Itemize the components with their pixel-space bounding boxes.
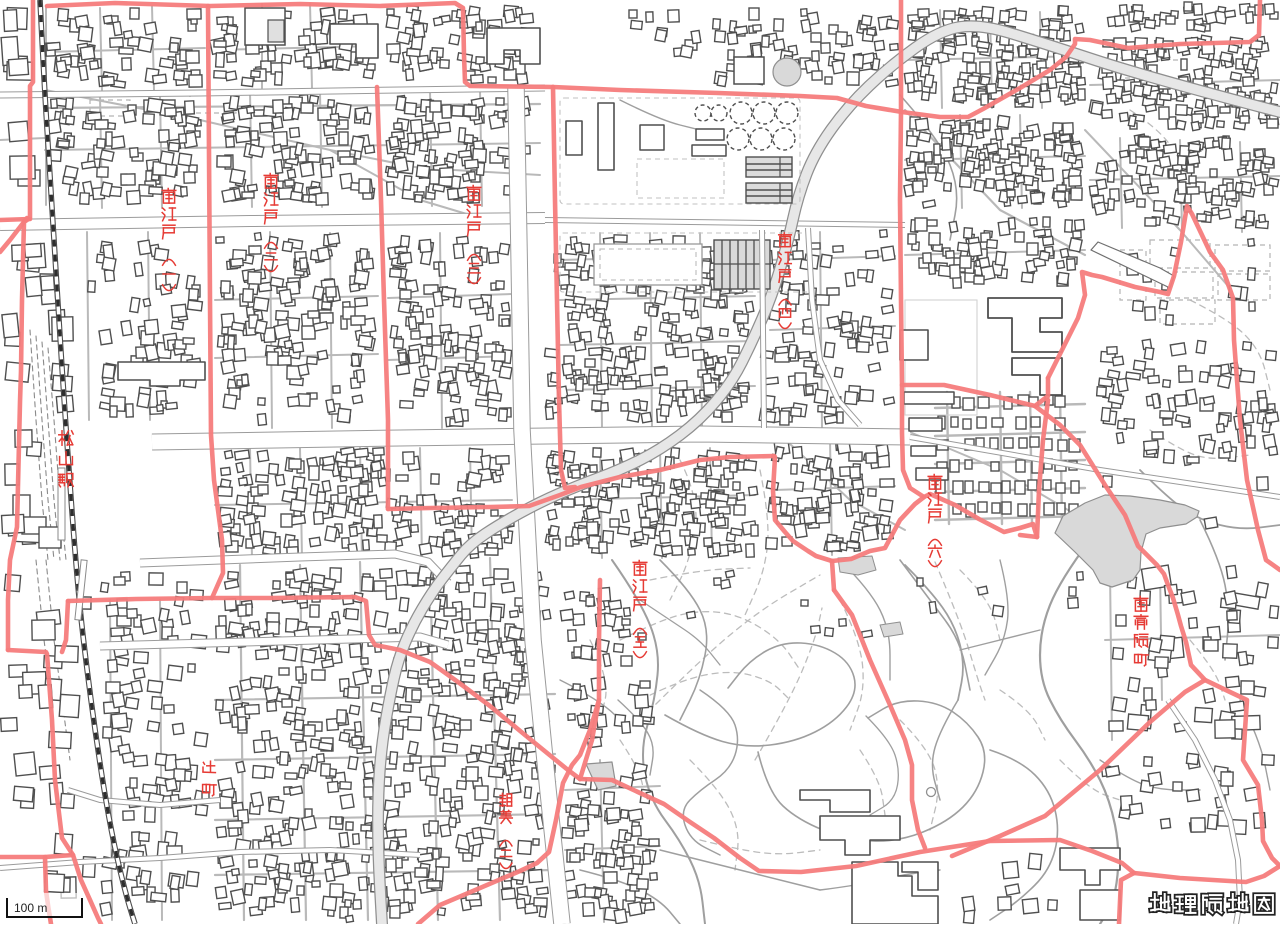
svg-text:100 m: 100 m (14, 901, 47, 915)
